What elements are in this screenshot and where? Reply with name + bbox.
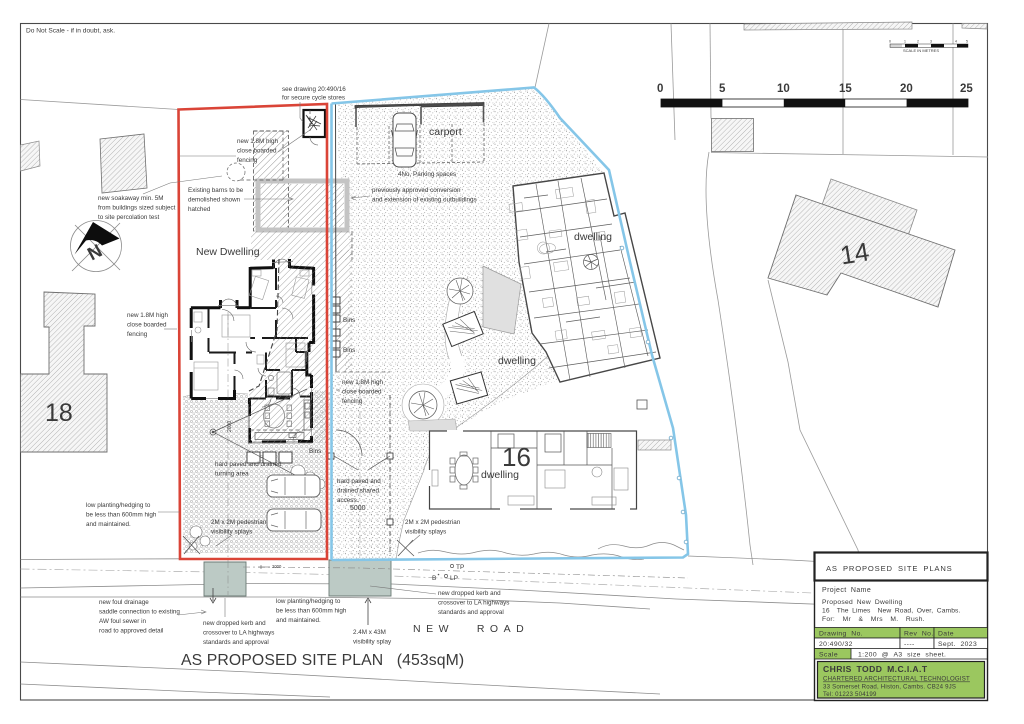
svg-text:dwelling: dwelling — [498, 355, 536, 367]
svg-text:Bins: Bins — [343, 347, 355, 354]
svg-text:new 1.8M high: new 1.8M high — [127, 312, 168, 319]
svg-text:5: 5 — [966, 40, 968, 44]
svg-text:Bins: Bins — [309, 448, 321, 455]
svg-text:16: 16 — [502, 442, 531, 472]
svg-text:4: 4 — [955, 40, 957, 44]
svg-text:18: 18 — [45, 399, 73, 427]
svg-text:2: 2 — [917, 40, 919, 44]
svg-text:dwelling: dwelling — [574, 231, 612, 243]
svg-text:and extension of existing outb: and extension of existing outbuildings — [372, 197, 477, 204]
svg-text:1:200 @ A3 size sheet.: 1:200 @ A3 size sheet. — [858, 652, 946, 659]
svg-text:new 1.8M high: new 1.8M high — [342, 379, 383, 386]
svg-text:road to approved detail: road to approved detail — [99, 628, 163, 635]
svg-text:new dropped kerb and: new dropped kerb and — [438, 590, 501, 597]
svg-text:standards and approval: standards and approval — [203, 639, 269, 646]
svg-text:15: 15 — [839, 83, 852, 95]
svg-text:5: 5 — [719, 83, 726, 95]
svg-text:new foul drainage: new foul drainage — [99, 599, 149, 606]
svg-text:hatched: hatched — [188, 206, 211, 213]
svg-text:visibility splays: visibility splays — [405, 529, 446, 536]
svg-text:CHARTERED ARCHITECTURAL TECHNO: CHARTERED ARCHITECTURAL TECHNOLOGIST — [823, 676, 970, 683]
svg-text:close boarded: close boarded — [237, 148, 277, 155]
svg-text:be less than 600mm high: be less than 600mm high — [86, 512, 157, 519]
svg-text:to site percolation test: to site percolation test — [98, 214, 160, 221]
svg-text:demolished shown: demolished shown — [188, 197, 241, 204]
svg-text:LP: LP — [450, 575, 458, 582]
svg-text:Sept. 2023: Sept. 2023 — [938, 641, 977, 648]
svg-text:low planting/hedging to: low planting/hedging to — [86, 502, 151, 509]
svg-text:2000: 2000 — [272, 564, 282, 569]
svg-text:TP: TP — [456, 564, 464, 571]
svg-text:20: 20 — [900, 83, 913, 95]
svg-text:turning area: turning area — [215, 471, 249, 478]
svg-text:hard paved and drained: hard paved and drained — [215, 461, 282, 468]
svg-text:hard paved and: hard paved and — [337, 478, 381, 485]
svg-text:5000: 5000 — [350, 505, 366, 512]
svg-text:Project Name: Project Name — [822, 587, 871, 594]
svg-text:new 1.8M high: new 1.8M high — [237, 138, 278, 145]
svg-text:Drawing No.: Drawing No. — [819, 631, 863, 638]
svg-text:2M x 2M pedestrian: 2M x 2M pedestrian — [405, 519, 461, 526]
svg-text:visibility splay: visibility splay — [353, 639, 392, 646]
svg-text:saddle connection to existing: saddle connection to existing — [99, 609, 180, 616]
svg-text:0: 0 — [889, 40, 891, 44]
svg-text:3: 3 — [930, 40, 932, 44]
svg-text:AW foul sewer in: AW foul sewer in — [99, 618, 147, 625]
svg-text:standards and approval: standards and approval — [438, 609, 504, 616]
svg-text:NEW ROAD: NEW ROAD — [413, 623, 529, 635]
svg-text:New Dwelling: New Dwelling — [196, 246, 260, 258]
svg-text:AS PROPOSED SITE PLAN (453sq: AS PROPOSED SITE PLAN (453sqM) — [181, 652, 464, 669]
svg-text:and maintained.: and maintained. — [276, 617, 321, 624]
svg-text:AS PROPOSED SITE PLANS: AS PROPOSED SITE PLANS — [826, 564, 953, 573]
svg-text:2M x 2M pedestrian: 2M x 2M pedestrian — [211, 519, 267, 526]
svg-text:crossover to LA highways: crossover to LA highways — [438, 600, 509, 607]
svg-text:fencing: fencing — [342, 398, 363, 405]
svg-text:4No. Parking spaces: 4No. Parking spaces — [398, 171, 456, 178]
svg-text:close boarded: close boarded — [342, 389, 382, 396]
svg-text:dwelling: dwelling — [481, 469, 519, 481]
svg-text:Tel: 01223 504199: Tel: 01223 504199 — [823, 691, 877, 698]
svg-text:previously approved conversion: previously approved conversion — [372, 187, 461, 194]
svg-text:2.4M x 43M: 2.4M x 43M — [353, 629, 386, 636]
svg-text:access.: access. — [337, 497, 359, 504]
svg-text:Proposed New Dwelling: Proposed New Dwelling — [822, 599, 903, 606]
svg-text:Rev No.: Rev No. — [904, 631, 934, 638]
svg-text:close boarded: close boarded — [127, 322, 167, 329]
svg-text:Date: Date — [938, 631, 954, 638]
svg-text:carport: carport — [429, 126, 462, 138]
svg-text:new soakaway min. 5M: new soakaway min. 5M — [98, 195, 163, 202]
svg-text:SCALE IN METRES: SCALE IN METRES — [903, 48, 939, 53]
svg-text:Existing barns to be: Existing barns to be — [188, 187, 244, 194]
svg-text:and maintained.: and maintained. — [86, 521, 131, 528]
svg-text:be less than 600mm high: be less than 600mm high — [276, 608, 347, 615]
svg-text:B: B — [432, 575, 436, 582]
svg-text:see drawing 20:490/16: see drawing 20:490/16 — [282, 86, 346, 93]
svg-text:from buildings sized subject: from buildings sized subject — [98, 205, 176, 212]
svg-text:crossover to LA highways: crossover to LA highways — [203, 630, 274, 637]
svg-text:drained shared: drained shared — [337, 488, 380, 495]
svg-text:visibility splays: visibility splays — [211, 529, 252, 536]
svg-text:low planting/hedging to: low planting/hedging to — [276, 598, 341, 605]
svg-text:16 The Limes New Road, Over,: 16 The Limes New Road, Over, Cambs. — [822, 608, 960, 615]
svg-text:1: 1 — [904, 40, 906, 44]
svg-text:33 Somerset Road, Histon, Camb: 33 Somerset Road, Histon, Cambs. CB24 9J… — [823, 684, 956, 691]
svg-text:CHRIS TODD M.C.I.A.T: CHRIS TODD M.C.I.A.T — [823, 664, 928, 674]
svg-text:10: 10 — [777, 83, 790, 95]
svg-text:fencing: fencing — [237, 157, 258, 164]
svg-text:0: 0 — [657, 83, 663, 95]
svg-text:14: 14 — [838, 236, 871, 270]
svg-text:fencing: fencing — [127, 331, 148, 338]
svg-text:----: ---- — [904, 641, 915, 648]
svg-text:Bins: Bins — [343, 317, 355, 324]
svg-text:Scale: Scale — [819, 652, 838, 659]
svg-text:20:490/32: 20:490/32 — [819, 641, 853, 648]
svg-text:25: 25 — [960, 83, 973, 95]
svg-text:for secure cycle stores: for secure cycle stores — [282, 95, 345, 102]
svg-text:For: Mr & Mrs M. Rush.: For: Mr & Mrs M. Rush. — [822, 616, 925, 623]
svg-text:new dropped kerb and: new dropped kerb and — [203, 620, 266, 627]
svg-text:Do Not Scale - if in doubt, as: Do Not Scale - if in doubt, ask. — [26, 28, 115, 35]
